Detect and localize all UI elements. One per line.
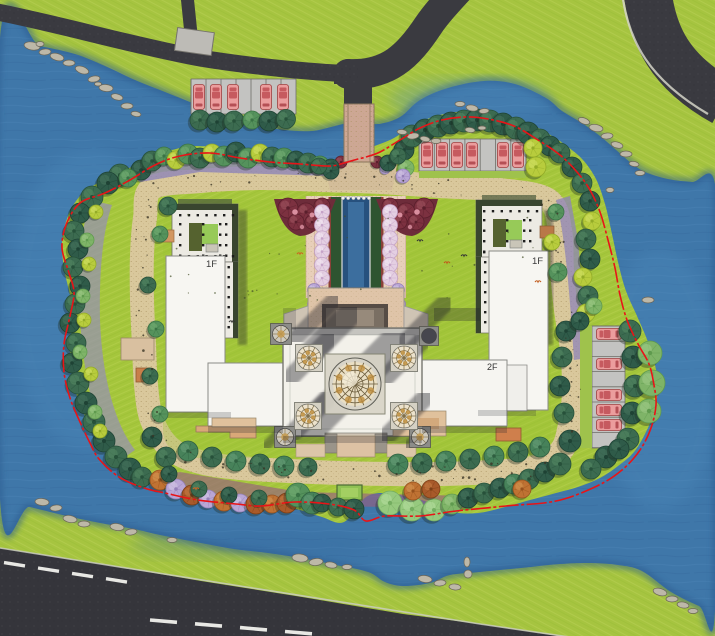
svg-text:1F: 1F bbox=[532, 256, 543, 267]
svg-text:2F: 2F bbox=[487, 362, 498, 372]
svg-text:1F: 1F bbox=[206, 259, 217, 270]
